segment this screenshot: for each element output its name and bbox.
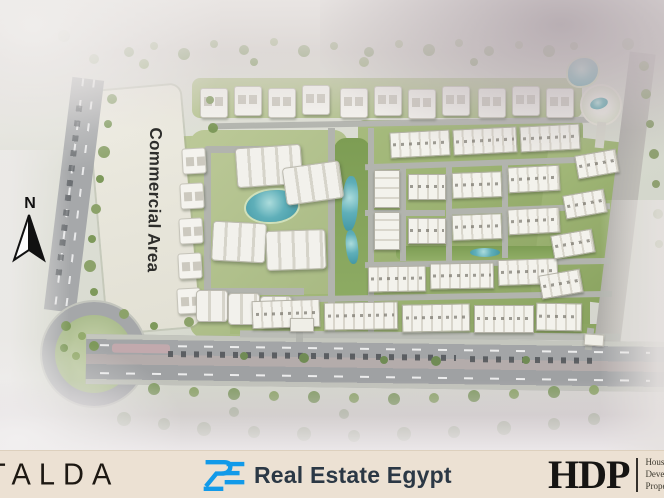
villa <box>268 88 296 118</box>
villa <box>374 86 402 116</box>
hdp-tagline: Housing and Development Properties <box>645 457 664 492</box>
boulevard-median-strip <box>112 344 170 354</box>
master-plan: Commercial Area N <box>0 0 664 450</box>
hdp-logo-divider <box>636 458 638 492</box>
hdp-tagline-line: Housing and <box>645 457 664 469</box>
townhouse-strip <box>368 265 426 292</box>
lake <box>568 58 598 86</box>
hdp-tagline-line: Properties <box>645 481 664 493</box>
entrance-gate <box>290 318 314 332</box>
realestate-egypt-logo: Real Estate Egypt <box>203 451 452 498</box>
water-feature <box>470 248 500 257</box>
villa <box>179 182 204 209</box>
villa <box>234 86 262 116</box>
townhouse-strip <box>519 123 580 152</box>
realestate-egypt-logo-icon <box>203 457 245 494</box>
villa <box>177 252 202 279</box>
hdp-tagline-line: Development <box>645 469 664 481</box>
north-arrow-icon <box>9 212 49 266</box>
hdp-logo: HDP Housing and Development Properties <box>548 451 664 498</box>
realestate-egypt-logo-text: Real Estate Egypt <box>254 462 452 489</box>
villa <box>408 89 436 119</box>
villa <box>546 88 574 118</box>
villa <box>478 88 506 118</box>
townhouse-strip <box>452 213 503 241</box>
commercial-area-label: Commercial Area <box>143 118 166 282</box>
west-road <box>44 77 104 313</box>
townhouse-strip <box>324 301 398 330</box>
townhouse-strip <box>402 303 470 332</box>
apartment-building <box>282 160 345 206</box>
talda-logo: TALDA <box>0 458 119 492</box>
townhouse-strip <box>507 165 560 194</box>
apartment-building <box>196 290 228 322</box>
villa <box>178 217 203 244</box>
north-indicator: N <box>6 196 52 271</box>
tree-cluster-roundabout <box>0 0 8 8</box>
villa <box>512 86 540 116</box>
townhouse-strip <box>452 126 517 155</box>
townhouse-strip <box>374 170 400 208</box>
townhouse-strip <box>452 171 503 199</box>
townhouse-strip <box>474 305 534 333</box>
villa <box>442 86 470 116</box>
townhouse-strip <box>408 174 446 200</box>
villa <box>302 85 330 115</box>
townhouse-strip <box>507 207 560 236</box>
townhouse-strip <box>430 262 494 289</box>
villa <box>200 88 228 118</box>
apartment-building <box>265 229 326 271</box>
hdp-logo-text: HDP <box>548 455 629 495</box>
villa <box>181 147 206 174</box>
townhouse-strip <box>408 218 446 244</box>
entrance-gate <box>584 333 605 346</box>
townhouse-strip <box>536 303 582 332</box>
screenshot: Commercial Area N TALDA Real Esta <box>0 0 664 498</box>
north-label: N <box>8 196 52 212</box>
footer: TALDA Real Estate Egypt HDP Housing and … <box>0 450 664 498</box>
villa <box>340 88 368 118</box>
townhouse-strip <box>389 129 450 158</box>
townhouse-strip <box>374 212 400 250</box>
apartment-building <box>211 221 267 264</box>
